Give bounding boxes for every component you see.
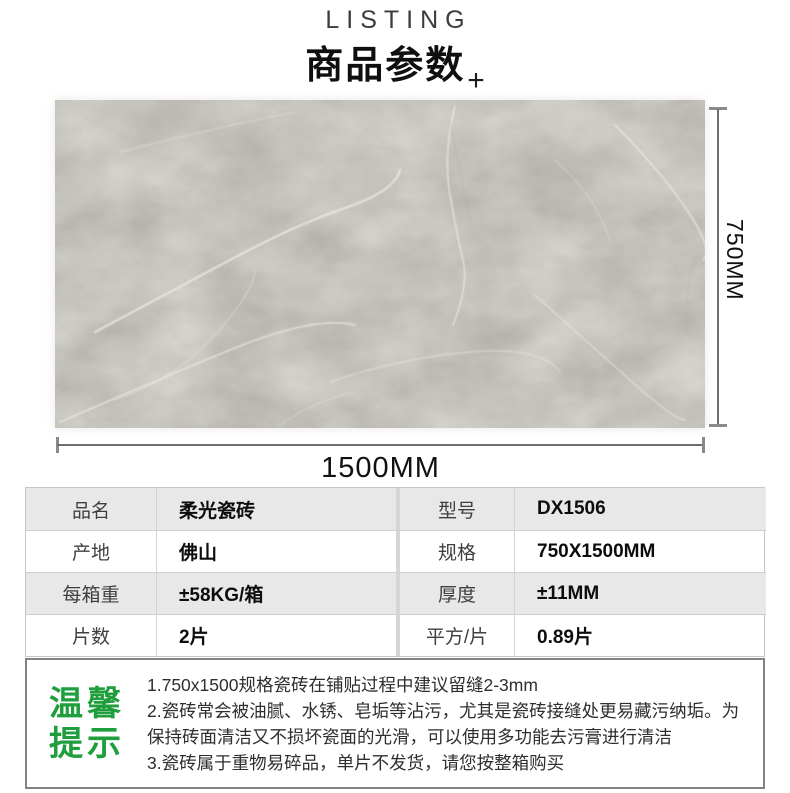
spec-value-size: 750X1500MM [514, 530, 766, 572]
width-dimension-line [56, 437, 705, 453]
width-dimension-label: 1500MM [56, 452, 705, 485]
dimension-cap [709, 424, 727, 427]
spec-value-product-name: 柔光瓷砖 [156, 488, 396, 530]
page-title-row: 商品参数 + [0, 34, 790, 89]
marble-texture-image [55, 100, 705, 428]
height-dimension-label: 750MM [721, 219, 748, 301]
spec-value-model: DX1506 [514, 488, 766, 530]
tile-photo [55, 100, 705, 428]
tip-item-2: 2.瓷砖常会被油腻、水锈、皂垢等沾污，尤其是瓷砖接缝处更易藏污纳垢。为保持砖面清… [147, 698, 753, 750]
tips-title-line1: 温馨 [27, 684, 147, 724]
listing-label: LISTING [0, 6, 790, 35]
spec-label-size: 规格 [396, 530, 514, 572]
spec-label-origin: 产地 [26, 530, 156, 572]
plus-mark: + [467, 64, 485, 98]
spec-label-sqm-per-piece: 平方/片 [396, 614, 514, 656]
dimension-line [57, 444, 704, 446]
spec-label-box-weight: 每箱重 [26, 572, 156, 614]
spec-value-thickness: ±11MM [514, 572, 766, 614]
tips-body: 1.750x1500规格瓷砖在铺贴过程中建议留缝2-3mm 2.瓷砖常会被油腻、… [147, 672, 763, 776]
spec-label-model: 型号 [396, 488, 514, 530]
product-parameters-page: LISTING 商品参数 + [0, 0, 790, 793]
tips-box: 温馨 提示 1.750x1500规格瓷砖在铺贴过程中建议留缝2-3mm 2.瓷砖… [25, 658, 765, 789]
tips-title: 温馨 提示 [27, 684, 147, 764]
spec-label-product-name: 品名 [26, 488, 156, 530]
spec-value-box-weight: ±58KG/箱 [156, 572, 396, 614]
spec-table: 品名 柔光瓷砖 型号 DX1506 产地 佛山 规格 750X1500MM 每箱… [25, 487, 765, 657]
spec-label-thickness: 厚度 [396, 572, 514, 614]
dimension-line [717, 109, 719, 425]
spec-value-origin: 佛山 [156, 530, 396, 572]
spec-value-sqm-per-piece: 0.89片 [514, 614, 766, 656]
tip-item-3: 3.瓷砖属于重物易碎品，单片不发货，请您按整箱购买 [147, 750, 753, 776]
dimension-cap [702, 437, 705, 453]
spec-value-piece-count: 2片 [156, 614, 396, 656]
page-title: 商品参数 [305, 34, 465, 89]
tips-title-line2: 提示 [27, 724, 147, 764]
spec-label-piece-count: 片数 [26, 614, 156, 656]
tip-item-1: 1.750x1500规格瓷砖在铺贴过程中建议留缝2-3mm [147, 672, 753, 698]
